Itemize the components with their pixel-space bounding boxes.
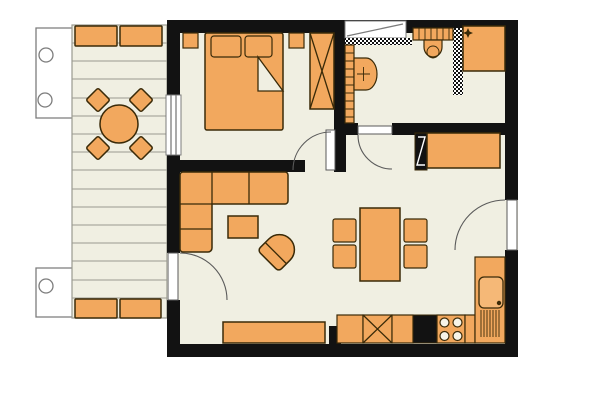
- burner-icon: [440, 332, 449, 341]
- wall-shelf: [183, 33, 198, 48]
- bedroom-window: [166, 95, 181, 155]
- coffee-table: [228, 216, 258, 238]
- dining-table: [360, 208, 400, 281]
- shower-partition: [453, 28, 463, 95]
- column-icon: [39, 279, 53, 293]
- hall-wardrobe: [427, 133, 500, 168]
- planter: [120, 299, 161, 318]
- pillow: [211, 36, 241, 57]
- dining-chair: [333, 245, 356, 268]
- floor-plan-canvas: [0, 0, 600, 400]
- terrace: [36, 25, 167, 318]
- planter: [75, 299, 117, 318]
- wall-bathroom-hall-left: [334, 123, 358, 135]
- bedroom-door: [326, 130, 335, 170]
- tiled-ledge: [345, 38, 412, 45]
- towel-radiator: [345, 45, 354, 123]
- wall-shelf: [289, 33, 304, 48]
- dining-chair: [404, 219, 427, 242]
- entry-door: [507, 200, 517, 250]
- sideboard: [223, 322, 325, 343]
- dining-chair: [333, 219, 356, 242]
- terrace-landing-bottom: [36, 268, 72, 317]
- terrace-round-table: [100, 105, 138, 143]
- dining-chair: [404, 245, 427, 268]
- drainer-lines: [481, 310, 499, 337]
- planter: [75, 26, 117, 46]
- kitchen-counter: [465, 315, 475, 343]
- terrace-deck: [72, 25, 167, 318]
- burner-icon: [440, 318, 449, 327]
- column-icon: [38, 93, 52, 107]
- pillow: [245, 36, 272, 57]
- wall-bedroom-bathroom: [334, 20, 346, 172]
- planter: [120, 26, 162, 46]
- column-icon: [39, 48, 53, 62]
- toilet-bowl: [424, 40, 442, 57]
- wall-bedroom-living: [180, 160, 305, 172]
- kitchen-counter: [337, 315, 363, 343]
- bathroom-door: [358, 126, 392, 134]
- burner-icon: [453, 332, 462, 341]
- burner-icon: [453, 318, 462, 327]
- hall: [415, 133, 500, 170]
- floor-plan: [0, 0, 600, 400]
- oven: [413, 315, 437, 343]
- kitchen-counter: [392, 315, 413, 343]
- sink-tap-icon: [497, 301, 501, 305]
- balcony-door: [168, 253, 178, 300]
